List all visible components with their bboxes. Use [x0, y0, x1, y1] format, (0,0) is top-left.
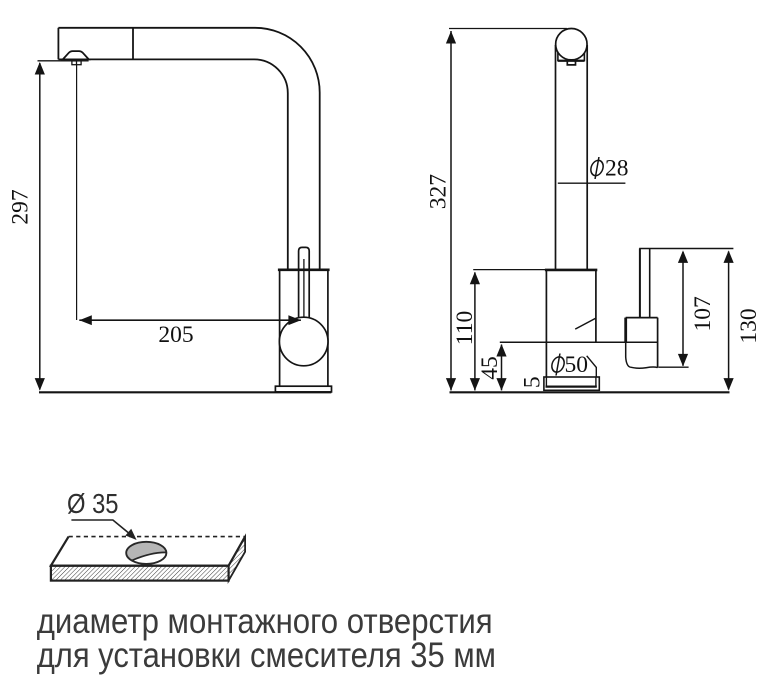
svg-text:для установки смесителя 35 мм: для установки смесителя 35 мм — [37, 636, 496, 675]
svg-text:297: 297 — [8, 189, 34, 225]
svg-text:Ø 35: Ø 35 — [67, 488, 119, 519]
svg-text:107: 107 — [690, 296, 716, 332]
svg-text:110: 110 — [452, 311, 478, 345]
svg-text:50: 50 — [565, 352, 589, 378]
svg-text:205: 205 — [158, 322, 193, 348]
svg-text:45: 45 — [477, 356, 503, 380]
svg-text:5: 5 — [520, 376, 546, 388]
svg-text:28: 28 — [605, 156, 629, 182]
svg-text:130: 130 — [736, 308, 762, 343]
svg-text:327: 327 — [426, 174, 452, 210]
